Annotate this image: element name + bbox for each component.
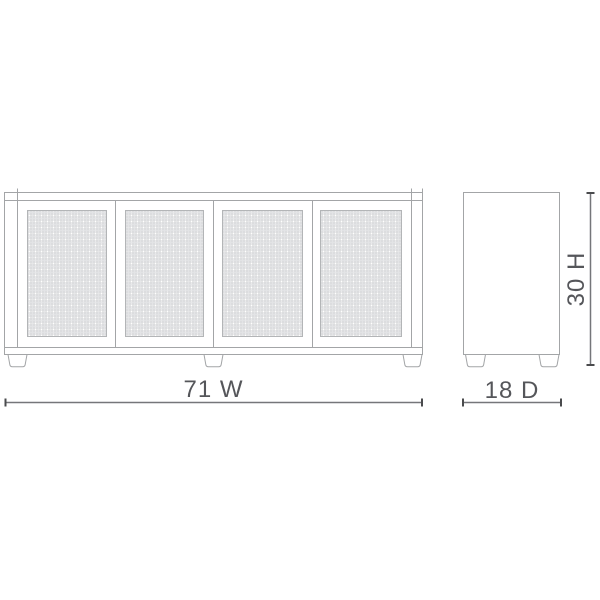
cane-door-panel-3	[223, 211, 303, 337]
front-leg-left	[8, 355, 27, 367]
width-dimension-label: 71 W	[0, 378, 427, 402]
cane-door-panel-1	[28, 211, 107, 337]
side-view-drawing	[464, 193, 560, 355]
side-carcass-outline	[464, 193, 560, 355]
front-legs	[8, 355, 422, 367]
front-leg-center	[204, 355, 223, 367]
front-leg-right	[403, 355, 422, 367]
side-leg-right	[539, 355, 559, 367]
depth-dimension-label: 18 D	[462, 379, 562, 403]
line-drawing	[0, 0, 600, 600]
cane-door-panel-2	[126, 211, 204, 337]
side-leg-left	[466, 355, 486, 367]
side-legs	[466, 355, 560, 367]
dimension-diagram: 71 W 18 D 30 H	[0, 0, 600, 600]
height-dimension-label: 30 H	[565, 252, 589, 307]
cane-door-panels	[28, 211, 402, 337]
cane-door-panel-4	[321, 211, 402, 337]
